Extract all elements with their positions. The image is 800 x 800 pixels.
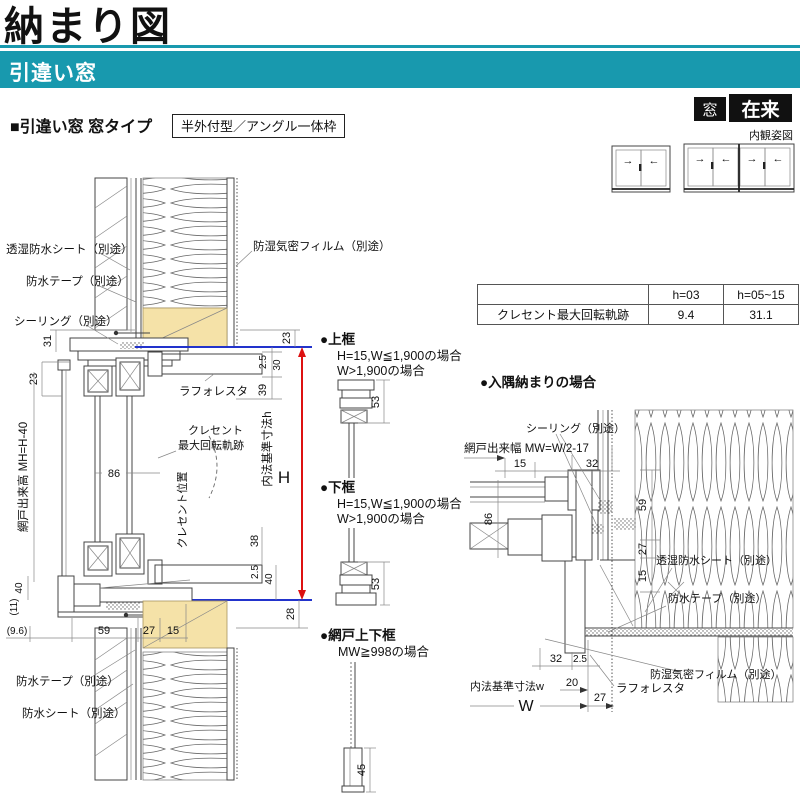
irisumi-title: ●入隅納まりの場合 (480, 374, 597, 390)
label-H: H (278, 468, 290, 487)
slide-arrow-icon: → (623, 155, 634, 167)
dim-40-right: 40 (264, 573, 275, 585)
irisumi-label-uchinori-w: 内法基準寸法w (470, 679, 544, 693)
detail-cond1: H=15,W≦1,900の場合 (337, 496, 462, 511)
dim-31: 31 (42, 335, 54, 347)
main-section-drawing: 透湿防水シート（別途） 防水テープ（別途） シーリング（別途） 防湿気密フィルム… (6, 178, 391, 780)
label-screen-height: 網戸出来高 MH=H-40 (16, 422, 30, 532)
irisumi-label-W: W (518, 698, 534, 715)
table-header-empty (478, 285, 649, 305)
label-tape-bottom: 防水テープ（別途） (16, 674, 119, 688)
dim-53: 53 (370, 396, 382, 408)
detail-cond: MW≧998の場合 (338, 644, 430, 659)
screw-icon (114, 331, 118, 335)
irisumi-dim-32-top: 32 (586, 458, 598, 470)
label-film: 防湿気密フィルム（別途） (253, 239, 391, 253)
irisumi-label-tape: 防水テープ（別途） (668, 591, 766, 605)
detail-title: ●下框 (320, 479, 356, 495)
irisumi-dim-15-top: 15 (514, 458, 526, 470)
table-header: h=03 (649, 285, 724, 305)
banner: 引違い窓 (0, 51, 800, 88)
label-crescent-2: 最大回転軌跡 (178, 438, 244, 452)
label-crescent-position: クレセント位置 (175, 472, 189, 549)
badge-mado: 窓 (694, 97, 726, 121)
label-sheet-bottom: 防水シート（別途） (22, 706, 126, 720)
detail-irisumi: ●入隅納まりの場合 (464, 374, 793, 715)
detail-cond1: H=15,W≦1,900の場合 (337, 348, 462, 363)
dim-38: 38 (249, 535, 261, 547)
label-tape-top: 防水テープ（別途） (26, 274, 129, 288)
dim-30: 30 (272, 359, 283, 371)
irisumi-label-sealing: シーリング（別途） (526, 421, 625, 435)
irisumi-dim-2-5: 2.5 (573, 654, 587, 665)
table-value: 9.4 (649, 305, 724, 325)
slide-arrow-icon: → (695, 153, 706, 165)
irisumi-dim-32-btm: 32 (550, 653, 562, 665)
naikan-label: 内観姿図 (749, 127, 793, 143)
irisumi-label-toshitsu-sheet: 透湿防水シート（別途） (656, 553, 777, 567)
naikan-window-2panel: → ← (612, 146, 670, 192)
irisumi-frame (470, 470, 636, 626)
dim-45: 45 (356, 764, 368, 776)
detail-title: ●網戸上下框 (320, 627, 396, 643)
page: 透湿防水シート（別途） 防水テープ（別途） シーリング（別途） 防湿気密フィルム… (0, 0, 800, 800)
dim-11: (11) (9, 598, 20, 615)
irisumi-dim-20: 20 (566, 677, 578, 689)
rafforesta-trim-bottom (155, 565, 262, 583)
crescent-lock-icon (763, 162, 766, 169)
detail-bottom-rail: ●下框 H=15,W≦1,900の場合 W>1,900の場合 53 (320, 479, 462, 605)
slide-arrow-icon: ← (721, 153, 732, 165)
dim-53: 53 (370, 578, 382, 590)
table-value: 31.1 (724, 305, 799, 325)
naikan-window-4panel: → ← → ← (684, 144, 794, 192)
table-row-label: クレセント最大回転軌跡 (478, 305, 649, 325)
crescent-lock-icon (711, 162, 714, 169)
slide-arrow-icon: → (747, 153, 758, 165)
crescent-lock-icon (639, 164, 642, 171)
dim-9-6: (9.6) (7, 626, 28, 637)
section-heading: ■引違い窓 窓タイプ (10, 113, 152, 137)
irisumi-dim-15-right: 15 (637, 570, 649, 582)
dim-40-left: 40 (14, 582, 25, 594)
dim-28: 28 (285, 608, 297, 620)
section-tag: 半外付型／アングル一体枠 (172, 114, 345, 138)
dim-23-right: 23 (281, 332, 293, 344)
screw-icon (124, 613, 128, 617)
slide-arrow-icon: ← (773, 153, 784, 165)
detail-cond2: W>1,900の場合 (337, 363, 425, 378)
irisumi-label-film: 防湿気密フィルム（別途） (650, 667, 782, 681)
dim-2-5-top: 2.5 (258, 355, 269, 369)
H-dimension-arrow (298, 347, 306, 600)
irisumi-rafforesta-trim (565, 557, 585, 653)
irisumi-dim-27-btm: 27 (594, 692, 606, 704)
detail-cond2: W>1,900の場合 (337, 511, 425, 526)
insect-screen (58, 360, 70, 588)
slide-arrow-icon: ← (649, 155, 660, 167)
dim-86: 86 (108, 468, 120, 480)
dim-59: 59 (98, 625, 110, 637)
title-underline (0, 45, 800, 48)
dim-2-5-bottom: 2.5 (250, 565, 261, 579)
label-toshitsu-sheet: 透湿防水シート（別途） (6, 242, 133, 256)
dim-27: 27 (143, 625, 155, 637)
label-sealing: シーリング（別途） (14, 314, 118, 328)
dim-39: 39 (257, 384, 269, 396)
label-rafforesta: ラフォレスタ (179, 385, 248, 398)
irisumi-dim-86: 86 (483, 513, 495, 525)
detail-top-rail: ●上框 H=15,W≦1,900の場合 W>1,900の場合 53 (320, 331, 462, 478)
irisumi-dim-27-right: 27 (637, 543, 649, 555)
label-uchinori-h: 内法基準寸法h (260, 411, 274, 486)
irisumi-dim-59: 59 (637, 499, 649, 511)
irisumi-label-screen-width: 網戸出来幅 MW=W/2-17 (464, 441, 589, 455)
dim-15: 15 (167, 625, 179, 637)
detail-title: ●上框 (320, 331, 356, 347)
table-header: h=05~15 (724, 285, 799, 305)
label-crescent-1: クレセント (188, 424, 243, 437)
badge-zairai: 在来 (729, 94, 792, 122)
sash-interior (116, 358, 144, 574)
detail-screen-rail: ●網戸上下框 MW≧998の場合 45 (320, 627, 430, 792)
irisumi-label-rafforesta: ラフォレスタ (616, 682, 685, 695)
crescent-table: h=03h=05~15クレセント最大回転軌跡9.431.1 (477, 284, 799, 325)
banner-label: 引違い窓 (0, 51, 800, 87)
